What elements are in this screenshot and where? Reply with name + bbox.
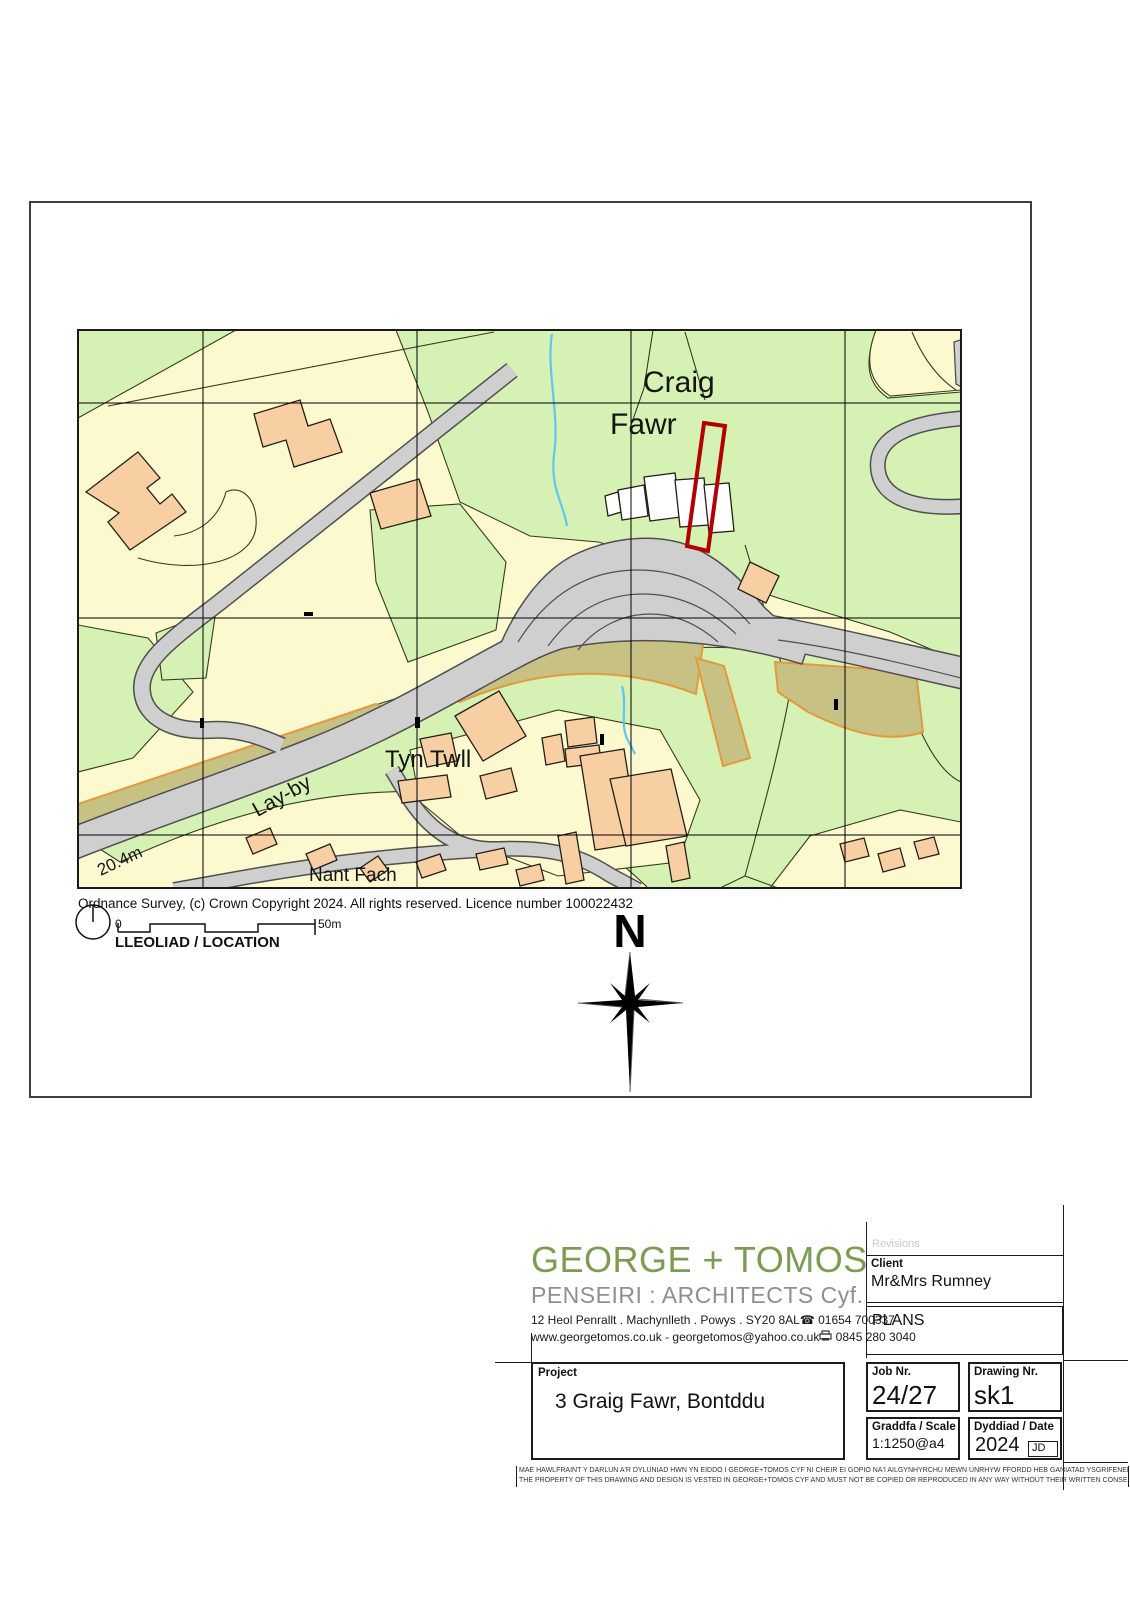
disclaimer-line2: THE PROPERTY OF THIS DRAWING AND DESIGN … [519, 1476, 1128, 1486]
disclaimer-line1: MAE HAWLFRAINT Y DARLUN A'R DYLUNIAD HWN… [519, 1466, 1128, 1476]
initials-box: JD [1028, 1441, 1058, 1457]
scale-box: Graddfa / Scale 1:1250@a4 [866, 1417, 960, 1460]
disclaimer-left-edge [516, 1466, 517, 1487]
drawing-nr-box: Drawing Nr. sk1 [968, 1362, 1062, 1412]
scale-value: 1:1250@a4 [868, 1433, 958, 1451]
client-label: Client [871, 1258, 903, 1270]
client-box-bottom [866, 1302, 1063, 1303]
drawing-nr-label: Drawing Nr. [970, 1364, 1060, 1378]
project-label: Project [533, 1364, 843, 1379]
disclaimer: MAE HAWLFRAINT Y DARLUN A'R DYLUNIAD HWN… [519, 1466, 1128, 1485]
fawr-label: Fawr [610, 408, 677, 441]
firm-subtitle: PENSEIRI : ARCHITECTS Cyf. [531, 1282, 864, 1309]
firm-web-row: www.georgetomos.co.uk - georgetomos@yaho… [531, 1330, 849, 1344]
os-location-map: Craig Fawr Tyn Twll Nant Fach Lay-by 20.… [72, 330, 967, 890]
scale-end-label: 50m [318, 917, 341, 931]
fax-icon [819, 1330, 832, 1341]
firm-address-row: 12 Heol Penrallt . Machynlleth . Powys .… [531, 1313, 849, 1327]
plans-value: PLANS [867, 1307, 1062, 1330]
scale-bar [118, 919, 315, 935]
frame-ext-top [1063, 1360, 1128, 1361]
tyn-twll-label: Tyn Twll [385, 746, 471, 773]
scale-label: Graddfa / Scale [868, 1419, 958, 1433]
craig-label: Craig [643, 366, 715, 399]
disclaimer-right-edge [1128, 1466, 1129, 1487]
frame-ext-bottom [1063, 1462, 1128, 1463]
project-box: Project 3 Graig Fawr, Bontddu [531, 1362, 845, 1460]
plans-box: PLANS [866, 1306, 1063, 1355]
nant-fach-label: Nant Fach [309, 865, 397, 886]
location-label: LLEOLIAD / LOCATION [115, 934, 280, 951]
date-box: Dyddiad / Date 2024 JD [968, 1417, 1062, 1460]
client-value: Mr&Mrs Rumney [871, 1273, 991, 1291]
project-line-stub [495, 1362, 531, 1363]
drawing-nr-value: sk1 [970, 1378, 1060, 1411]
project-value: 3 Graig Fawr, Bontddu [533, 1379, 843, 1414]
drawing-sheet: Craig Fawr Tyn Twll Nant Fach Lay-by 20.… [0, 0, 1130, 1600]
date-label: Dyddiad / Date [970, 1419, 1060, 1433]
firm-name: GEORGE + TOMOS [531, 1239, 868, 1281]
project-left-stub [531, 1333, 532, 1362]
client-box-top [866, 1255, 1063, 1256]
titleblock-right-edge [1063, 1205, 1064, 1490]
revisions-label: Revisions [872, 1238, 920, 1250]
copyright-text: Ordnance Survey, (c) Crown Copyright 202… [78, 896, 633, 911]
firm-web: www.georgetomos.co.uk - georgetomos@yaho… [531, 1330, 819, 1344]
north-label: N [613, 905, 646, 957]
date-value: 2024 [975, 1434, 1020, 1457]
scale-bar-group: 0 50m LLEOLIAD / LOCATION [76, 905, 341, 951]
phone-icon: ☎ [800, 1313, 815, 1327]
job-nr-value: 24/27 [868, 1378, 958, 1411]
north-arrow-icon: N [578, 905, 683, 1092]
job-nr-label: Job Nr. [868, 1364, 958, 1378]
job-nr-box: Job Nr. 24/27 [866, 1362, 960, 1412]
firm-address: 12 Heol Penrallt . Machynlleth . Powys .… [531, 1313, 800, 1327]
drawing-area: Craig Fawr Tyn Twll Nant Fach Lay-by 20.… [29, 201, 1032, 1098]
